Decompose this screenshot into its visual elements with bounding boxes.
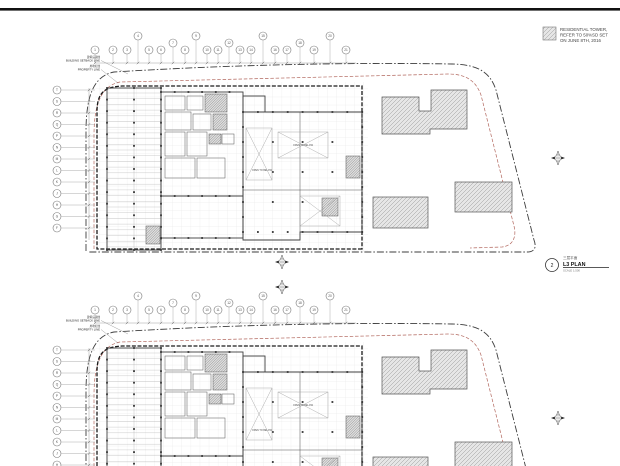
plan-number: 2 [551,263,554,269]
legend: RESIDENTIAL TOWER, REFER TO 50%SD SET ON… [543,27,608,43]
lower-plan [53,292,565,466]
drawing-sheet: 123456789101112131415161718192021 TSRQPN… [0,0,620,466]
plan-title-en: L3 PLAN [563,262,586,268]
legend-swatch-residential-tower [543,27,556,40]
legend-line: ON JUNE 8TH, 2016 [560,38,602,43]
plan-title-block: 2 三层平面 L3 PLAN SCALE 1:500 [546,255,610,273]
site-plan-svg: 123456789101112131415161718192021 TSRQPN… [0,0,620,466]
legend-line: REFER TO 50%SD SET [560,32,608,37]
plan-scale: SCALE 1:500 [563,269,580,273]
upper-plan-L3 [53,32,565,252]
plan-title-cn: 三层平面 [563,255,578,260]
legend-line: RESIDENTIAL TOWER, [560,27,607,32]
key-symbol-upper [275,255,289,269]
sheet-border-rule [0,8,620,11]
key-symbol-lower [275,280,289,294]
